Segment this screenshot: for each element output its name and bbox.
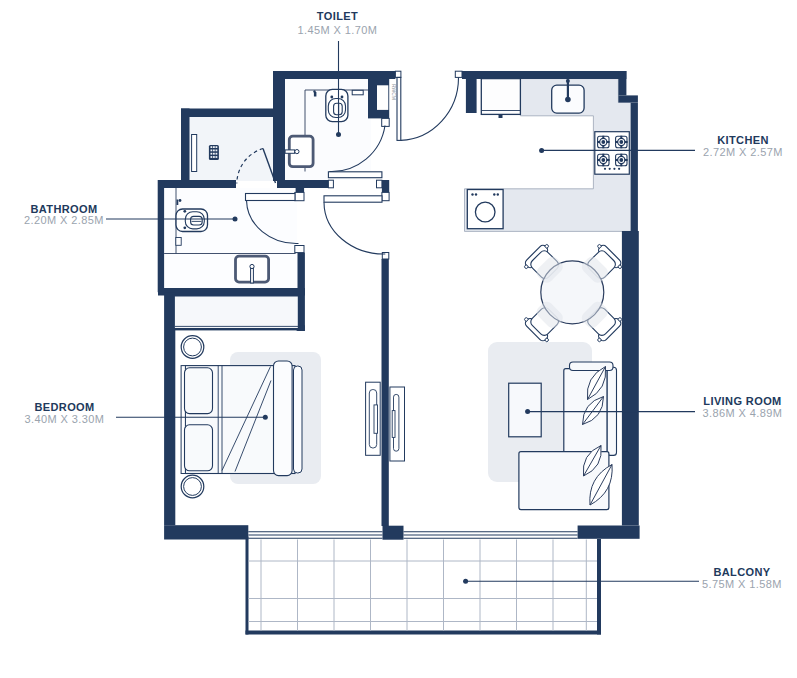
svg-text:KITCHEN: KITCHEN <box>717 134 769 146</box>
svg-text:3.86M X 4.89M: 3.86M X 4.89M <box>703 407 783 419</box>
svg-text:BEDROOM: BEDROOM <box>34 401 94 413</box>
svg-text:TOILET: TOILET <box>317 10 358 22</box>
svg-text:LIVING ROOM: LIVING ROOM <box>703 395 781 407</box>
svg-text:BALCONY: BALCONY <box>713 566 770 578</box>
svg-text:1.45M X 1.70M: 1.45M X 1.70M <box>298 24 378 36</box>
svg-text:3.40M X 3.30M: 3.40M X 3.30M <box>25 413 105 425</box>
svg-text:2.72M X 2.57M: 2.72M X 2.57M <box>703 146 783 158</box>
svg-text:RWCM: RWCM <box>391 84 397 100</box>
svg-text:5.75M X 1.58M: 5.75M X 1.58M <box>702 578 782 590</box>
svg-text:2.20M X 2.85M: 2.20M X 2.85M <box>24 214 104 226</box>
